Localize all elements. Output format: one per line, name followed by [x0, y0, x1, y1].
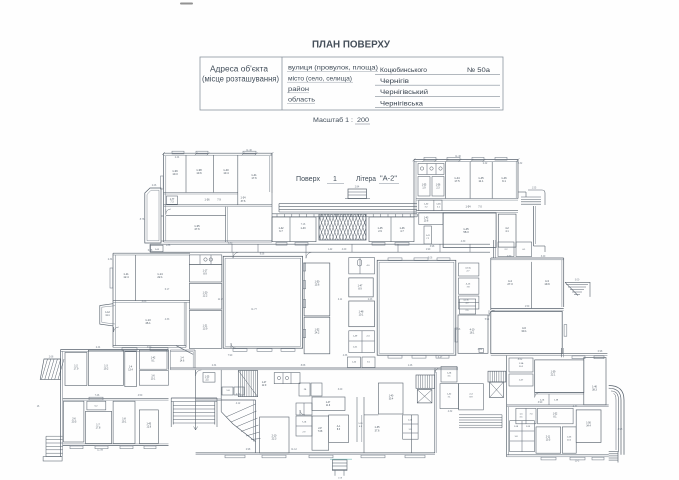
svg-text:1-43: 1-43: [424, 218, 429, 220]
svg-text:37.6: 37.6: [241, 200, 246, 203]
svg-text:1-42: 1-42: [151, 358, 156, 360]
svg-text:1-45: 1-45: [146, 424, 151, 426]
svg-text:2.42: 2.42: [483, 163, 488, 165]
svg-text:3.00: 3.00: [575, 280, 580, 282]
svg-text:4.12: 4.12: [236, 403, 241, 405]
svg-text:11.1: 11.1: [105, 315, 110, 317]
svg-text:0.98: 0.98: [598, 351, 603, 353]
svg-text:10.1: 10.1: [151, 379, 156, 381]
svg-text:8.76: 8.76: [140, 219, 145, 221]
svg-text:Чернігівська: Чернігівська: [380, 100, 423, 108]
svg-text:17.9: 17.9: [74, 368, 79, 371]
svg-text:Масштаб 1 :: Масштаб 1 :: [313, 116, 353, 124]
svg-text:ПЛАН ПОВЕРХУ: ПЛАН ПОВЕРХУ: [312, 39, 390, 51]
svg-text:1.56: 1.56: [456, 329, 461, 331]
svg-text:4.32: 4.32: [448, 411, 453, 413]
svg-text:2-Р: 2-Р: [318, 428, 322, 430]
svg-text:5.91: 5.91: [485, 319, 490, 321]
svg-text:Поверх: Поверх: [296, 176, 320, 183]
svg-text:3.40: 3.40: [541, 256, 546, 258]
svg-text:0.86: 0.86: [142, 301, 147, 303]
svg-text:46.1: 46.1: [145, 321, 151, 325]
svg-text:4.90: 4.90: [147, 347, 152, 349]
svg-text:1-57: 1-57: [519, 380, 524, 382]
svg-text:4.36: 4.36: [343, 355, 348, 357]
svg-text:13-2: 13-2: [575, 461, 580, 463]
svg-text:2.44: 2.44: [175, 157, 180, 159]
svg-text:5.80: 5.80: [228, 243, 233, 245]
svg-text:3.90: 3.90: [538, 402, 543, 404]
svg-text:17.8: 17.8: [96, 427, 101, 430]
svg-text:11.46: 11.46: [246, 150, 252, 152]
svg-text:30.4: 30.4: [389, 399, 394, 401]
svg-text:12.9: 12.9: [262, 385, 267, 387]
svg-text:4.37: 4.37: [573, 406, 578, 408]
svg-text:4.30: 4.30: [461, 241, 466, 243]
svg-text:Коцюбинського: Коцюбинського: [380, 66, 427, 74]
svg-text:4.50: 4.50: [138, 395, 143, 397]
svg-text:2.34: 2.34: [212, 365, 217, 367]
svg-text:6.08: 6.08: [148, 250, 153, 252]
svg-text:місто (село, селища): місто (село, селища): [288, 76, 352, 83]
svg-text:2.34: 2.34: [108, 259, 113, 261]
svg-text:30.1: 30.1: [521, 329, 527, 333]
svg-text:Адреса об'єкта: Адреса об'єкта: [210, 65, 269, 74]
svg-text:1-25: 1-25: [205, 377, 210, 379]
svg-text:1-22: 1-22: [328, 249, 333, 251]
svg-text:4.80: 4.80: [507, 256, 512, 258]
svg-text:17.6: 17.6: [251, 176, 257, 180]
svg-text:19.1: 19.1: [122, 421, 127, 424]
svg-text:20.5: 20.5: [72, 421, 77, 424]
svg-text:1.46: 1.46: [408, 365, 413, 367]
svg-text:4-13б: 4-13б: [463, 300, 469, 302]
svg-text:8.62: 8.62: [478, 349, 483, 351]
svg-text:вулиця (провулок, площа): вулиця (провулок, площа): [288, 65, 378, 72]
svg-text:1.90: 1.90: [426, 249, 431, 251]
svg-text:14.6: 14.6: [180, 361, 185, 363]
svg-text:47.6: 47.6: [194, 227, 200, 231]
svg-text:1-4Б: 1-4Б: [436, 204, 441, 206]
svg-text:"А-2": "А-2": [380, 176, 398, 183]
svg-text:1-43: 1-43: [300, 227, 306, 230]
svg-text:7.90: 7.90: [228, 355, 233, 357]
svg-text:13.4: 13.4: [223, 171, 229, 175]
svg-text:24.2: 24.2: [315, 332, 320, 335]
svg-text:13.6: 13.6: [196, 171, 202, 175]
svg-text:№ 50а: № 50а: [467, 67, 490, 74]
svg-text:Літера: Літера: [356, 175, 376, 183]
svg-text:1-4Б: 1-4Б: [447, 373, 452, 375]
svg-text:11.12: 11.12: [291, 449, 297, 451]
svg-text:19.9: 19.9: [544, 282, 550, 286]
svg-text:8.98: 8.98: [618, 429, 623, 431]
svg-text:200: 200: [357, 117, 369, 124]
svg-text:4.11: 4.11: [338, 299, 343, 301]
svg-text:7.0: 7.0: [478, 206, 482, 209]
svg-text:17.5: 17.5: [454, 179, 460, 183]
svg-text:37.6: 37.6: [375, 429, 380, 432]
svg-text:58.3: 58.3: [463, 230, 469, 234]
svg-text:9.06: 9.06: [428, 258, 433, 260]
svg-text:12.8: 12.8: [147, 427, 152, 429]
svg-text:4.20: 4.20: [342, 249, 347, 251]
svg-text:1-77: 1-77: [170, 199, 175, 201]
svg-text:1-27: 1-27: [262, 382, 267, 384]
svg-text:1-40: 1-40: [389, 396, 394, 398]
svg-text:Чернігів: Чернігів: [380, 77, 410, 85]
svg-text:1-49: 1-49: [353, 336, 358, 338]
svg-text:11.77: 11.77: [218, 299, 224, 301]
svg-text:7.46: 7.46: [95, 395, 100, 397]
svg-text:2.68: 2.68: [49, 357, 54, 359]
svg-text:13.9: 13.9: [203, 328, 208, 331]
svg-text:1-51: 1-51: [353, 347, 358, 349]
svg-text:8.68: 8.68: [301, 365, 306, 367]
svg-text:1-42: 1-42: [447, 394, 452, 396]
svg-text:2.84: 2.84: [355, 187, 360, 189]
svg-text:1.55: 1.55: [532, 188, 537, 190]
svg-text:1-1Б: 1-1Б: [352, 362, 357, 364]
svg-text:22.1: 22.1: [551, 374, 556, 377]
svg-text:19.2: 19.2: [104, 368, 109, 371]
svg-text:6.47: 6.47: [438, 357, 443, 359]
svg-text:10.3: 10.3: [172, 172, 178, 176]
svg-text:11.1: 11.1: [478, 179, 484, 183]
svg-text:2.26: 2.26: [152, 185, 157, 187]
svg-text:15.6: 15.6: [315, 284, 320, 287]
svg-text:3.20: 3.20: [338, 389, 343, 391]
svg-text:8.62: 8.62: [518, 359, 523, 361]
svg-text:34.4: 34.4: [586, 426, 591, 428]
svg-text:Чернігівський: Чернігівський: [380, 88, 428, 96]
svg-text:2.23: 2.23: [368, 299, 373, 301]
svg-text:7.16: 7.16: [301, 224, 306, 226]
svg-text:(місце розташування): (місце розташування): [202, 75, 279, 84]
svg-text:4-13а: 4-13а: [465, 268, 471, 270]
svg-text:1-55: 1-55: [422, 185, 427, 187]
svg-text:22.1: 22.1: [157, 275, 163, 279]
svg-text:10.1: 10.1: [359, 314, 364, 317]
svg-text:11.46: 11.46: [455, 156, 461, 158]
svg-text:1-3Б: 1-3Б: [519, 363, 524, 365]
svg-text:1-12: 1-12: [105, 312, 110, 314]
svg-text:4.7: 4.7: [400, 230, 404, 233]
svg-text:27.3: 27.3: [507, 282, 513, 286]
svg-text:9.1: 9.1: [502, 179, 506, 183]
svg-text:10.8: 10.8: [424, 221, 429, 223]
svg-text:12.4: 12.4: [123, 275, 129, 279]
svg-text:13.4: 13.4: [128, 370, 133, 372]
svg-text:1-36: 1-36: [204, 199, 210, 202]
svg-text:11.77: 11.77: [251, 309, 257, 311]
svg-text:4.33: 4.33: [165, 319, 170, 321]
svg-text:1-52: 1-52: [553, 414, 558, 416]
svg-text:1-40: 1-40: [424, 204, 429, 206]
svg-text:1-56: 1-56: [586, 423, 591, 425]
svg-text:12.2: 12.2: [203, 295, 208, 298]
svg-text:район: район: [288, 86, 309, 93]
svg-text:10.5: 10.5: [546, 440, 551, 442]
svg-text:2.9: 2.9: [378, 230, 382, 233]
svg-text:7.08: 7.08: [318, 431, 323, 433]
svg-text:2.44: 2.44: [96, 347, 101, 349]
svg-text:1.50: 1.50: [525, 306, 530, 308]
svg-text:2-11: 2-11: [546, 437, 551, 439]
svg-text:3.98: 3.98: [430, 246, 435, 248]
svg-text:1.88: 1.88: [166, 245, 171, 247]
svg-text:1-54: 1-54: [465, 206, 471, 209]
svg-text:1-47: 1-47: [326, 402, 331, 404]
svg-text:область: область: [288, 97, 315, 104]
svg-text:4-13: 4-13: [466, 284, 471, 286]
svg-text:22.3: 22.3: [272, 438, 277, 441]
svg-text:1-56: 1-56: [436, 185, 441, 187]
svg-text:38.3: 38.3: [592, 389, 597, 392]
svg-text:4.20: 4.20: [236, 394, 241, 396]
svg-text:6.7: 6.7: [279, 230, 283, 233]
svg-text:18.1: 18.1: [470, 332, 475, 335]
svg-text:9.56: 9.56: [260, 254, 265, 256]
svg-text:1-53: 1-53: [567, 437, 572, 439]
svg-text:2.98: 2.98: [246, 449, 251, 451]
svg-text:2.32: 2.32: [518, 163, 523, 165]
svg-text:7-1Б: 7-1Б: [302, 422, 307, 424]
svg-text:1: 1: [333, 176, 337, 183]
svg-text:7.9: 7.9: [217, 199, 221, 202]
svg-text:6.17: 6.17: [165, 289, 170, 291]
svg-text:11.6: 11.6: [326, 405, 331, 407]
svg-text:11.98: 11.98: [97, 449, 103, 452]
